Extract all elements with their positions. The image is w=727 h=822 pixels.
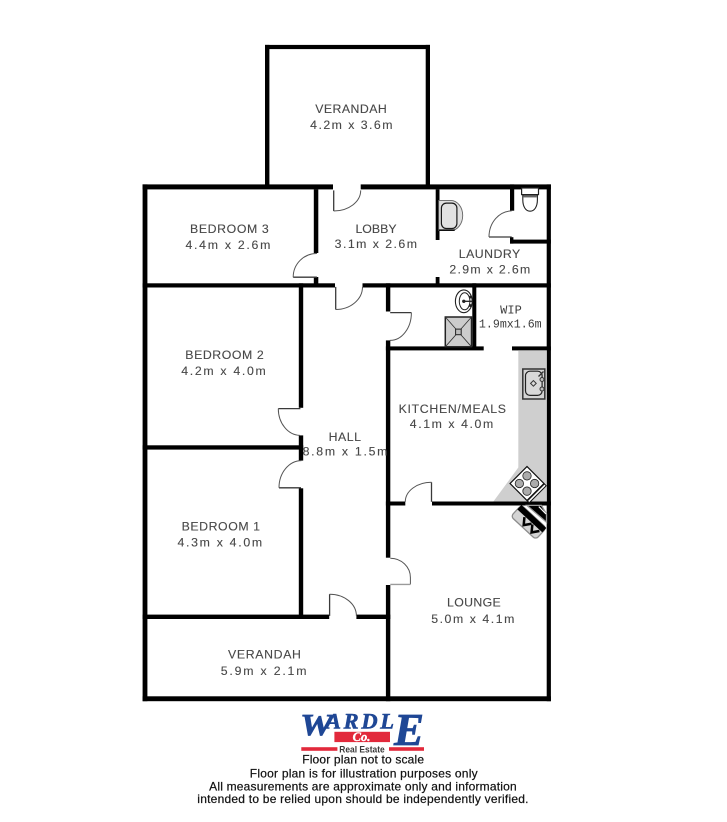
svg-text:4.3m x 4.0m: 4.3m x 4.0m — [178, 535, 263, 549]
svg-text:WIP: WIP — [500, 304, 522, 317]
svg-text:LOBBY: LOBBY — [355, 222, 396, 236]
svg-text:VERANDAH: VERANDAH — [315, 102, 387, 116]
svg-text:KITCHEN/MEALS: KITCHEN/MEALS — [399, 402, 506, 416]
svg-text:1.9mx1.6m: 1.9mx1.6m — [479, 319, 542, 332]
svg-text:E: E — [393, 704, 424, 755]
svg-text:intended to be relied upon sho: intended to be relied upon should be ind… — [197, 792, 528, 806]
svg-text:LOUNGE: LOUNGE — [447, 596, 501, 610]
svg-text:5.0m x 4.1m: 5.0m x 4.1m — [431, 612, 514, 626]
svg-text:4.1m x 4.0m: 4.1m x 4.0m — [410, 417, 493, 431]
svg-text:BEDROOM 2: BEDROOM 2 — [185, 348, 264, 362]
svg-text:HALL: HALL — [329, 430, 361, 444]
svg-text:8.8m x 1.5m: 8.8m x 1.5m — [303, 445, 388, 459]
svg-text:LAUNDRY: LAUNDRY — [459, 247, 520, 261]
svg-text:2.9m x 2.6m: 2.9m x 2.6m — [449, 262, 530, 276]
svg-text:4.2m x 3.6m: 4.2m x 3.6m — [310, 118, 392, 132]
svg-text:4.2m x 4.0m: 4.2m x 4.0m — [181, 364, 266, 378]
svg-text:Floor plan not to scale: Floor plan not to scale — [302, 753, 424, 767]
svg-text:4.4m x 2.6m: 4.4m x 2.6m — [185, 238, 270, 252]
svg-text:BEDROOM 1: BEDROOM 1 — [182, 520, 261, 534]
svg-text:BEDROOM 3: BEDROOM 3 — [190, 222, 269, 236]
svg-text:Floor plan is for illustration: Floor plan is for illustration purposes … — [250, 766, 478, 780]
svg-text:3.1m x 2.6m: 3.1m x 2.6m — [335, 237, 417, 251]
svg-text:VERANDAH: VERANDAH — [228, 648, 301, 662]
svg-text:Co.: Co. — [353, 730, 371, 744]
